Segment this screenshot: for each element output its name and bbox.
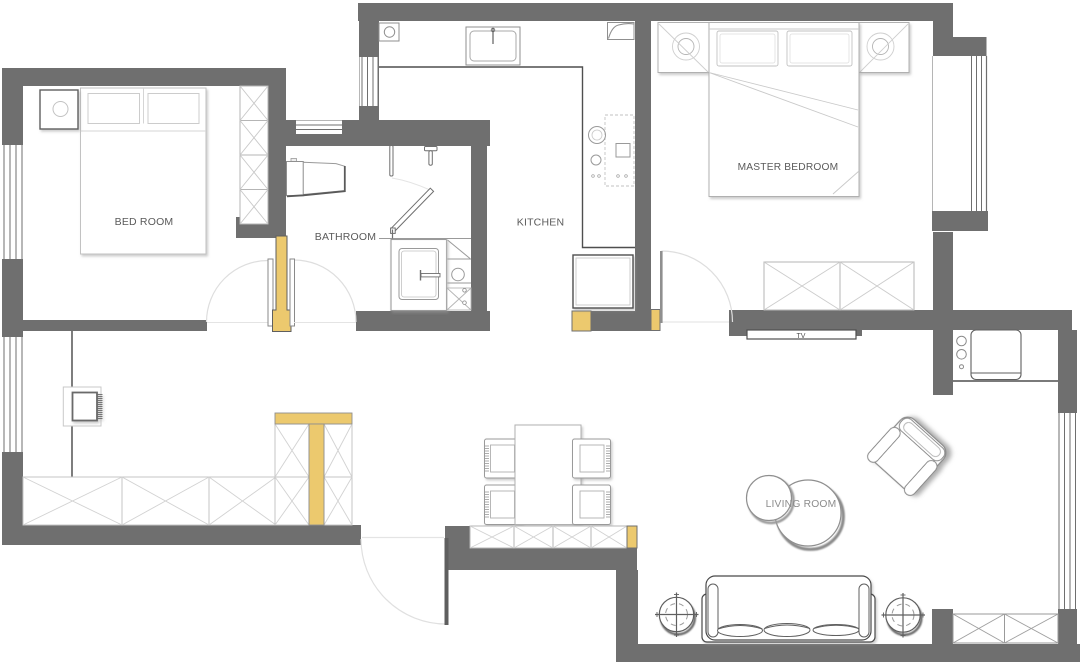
svg-text:TV: TV — [797, 333, 806, 340]
svg-text:BATHROOM: BATHROOM — [315, 231, 377, 243]
svg-text:KITCHEN: KITCHEN — [517, 217, 565, 229]
svg-text:MASTER BEDROOM: MASTER BEDROOM — [738, 162, 839, 173]
svg-text:LIVING ROOM: LIVING ROOM — [766, 499, 837, 510]
svg-text:BED ROOM: BED ROOM — [115, 216, 174, 228]
